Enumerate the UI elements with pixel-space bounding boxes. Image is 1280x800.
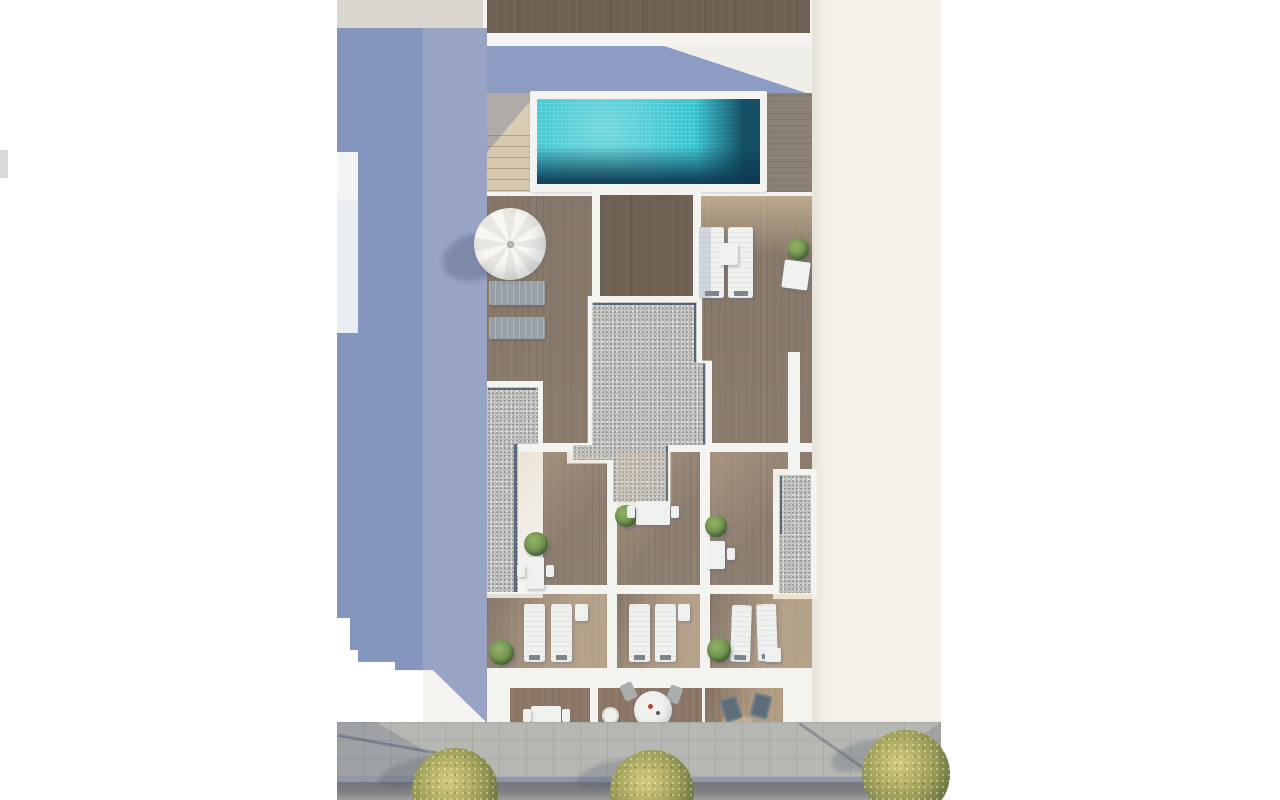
side-table — [575, 604, 588, 621]
roof-edge-line — [694, 303, 696, 362]
neighbor-building-top — [337, 0, 483, 28]
dining-chair — [627, 506, 635, 518]
potted-plant — [707, 638, 731, 662]
pool-deep-shadow-right — [695, 99, 760, 184]
bulkhead-room-floor — [600, 195, 693, 300]
table-decor-dark — [656, 711, 660, 715]
dining-chair — [727, 548, 735, 560]
dining-chair — [523, 709, 531, 722]
dining-chair — [517, 565, 525, 577]
side-table — [765, 648, 781, 662]
white-sun-lounger — [629, 604, 650, 662]
dining-table — [707, 541, 725, 569]
aerial-render-scene — [0, 0, 1280, 800]
parasol-pole — [507, 241, 514, 248]
terrace-chair — [781, 259, 811, 290]
white-sun-lounger — [551, 604, 572, 662]
potted-plant — [489, 640, 514, 665]
side-table — [719, 243, 738, 265]
lounger-shade — [699, 227, 711, 298]
table-decor-red — [648, 704, 653, 709]
side-table — [678, 604, 690, 621]
dining-table — [526, 557, 544, 589]
white-sun-lounger — [730, 605, 752, 663]
dining-table — [636, 501, 670, 525]
dining-chair — [671, 506, 679, 518]
dining-chair — [546, 565, 554, 577]
gravel-roof-left-upper — [487, 387, 538, 444]
white-sun-lounger — [524, 604, 545, 662]
wall-right-vertical — [788, 352, 800, 472]
white-sun-lounger — [655, 604, 676, 662]
building-cast-shadow — [337, 28, 423, 723]
roof-edge-line — [488, 388, 536, 390]
neighbor-building-right — [812, 0, 941, 722]
gray-sun-lounger — [489, 317, 545, 339]
left-edge-fragment — [0, 150, 8, 178]
gray-sun-lounger — [489, 281, 545, 305]
potted-plant — [524, 532, 548, 556]
pool-side-deck — [762, 93, 812, 192]
white-wall-fragment — [337, 152, 358, 333]
potted-plant — [787, 238, 809, 260]
roof-edge-line — [703, 364, 705, 444]
potted-plant — [705, 515, 727, 537]
dining-chair — [562, 709, 570, 722]
roof-edge-line — [593, 303, 696, 305]
walkway-shadow — [423, 28, 487, 723]
rooftop-deck-top — [487, 0, 810, 33]
